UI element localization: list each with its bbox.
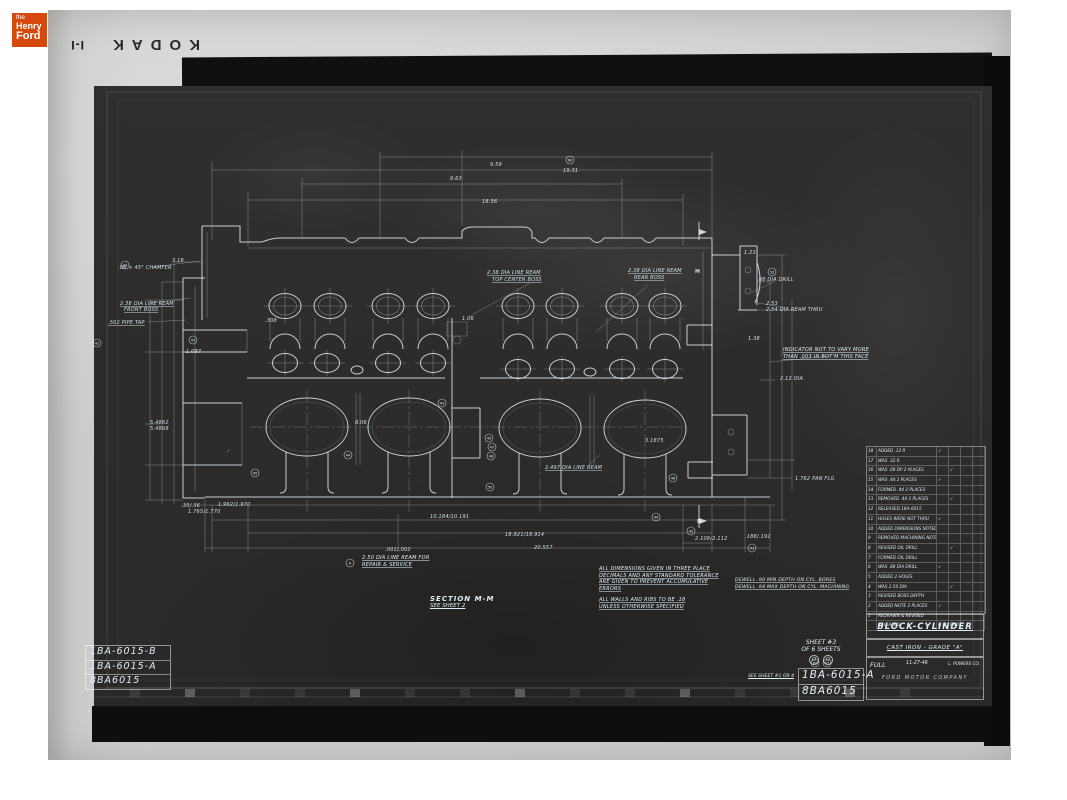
logo-ford: Ford — [16, 31, 47, 42]
revision-table: 18 ADDED .12 R ✓ 17 WAS .32 R 16 WAS .08… — [866, 446, 986, 614]
revision-cell — [961, 495, 973, 504]
revision-cell — [973, 583, 985, 592]
walls-note: ALL WALLS AND RIBS TO BE .18UNLESS OTHER… — [599, 597, 685, 610]
revision-text: FORMED .44 2 PLACES — [877, 486, 937, 495]
revision-row: 3 REVISED BOSS DEPTH — [867, 592, 985, 602]
zone-tick — [405, 689, 415, 697]
revision-text: WAS .88 DIA DRILL — [877, 563, 937, 572]
section-label: SECTION M-M SEE SHEET 2 — [430, 595, 494, 609]
revision-row: 5 ADDED 2 HOLES — [867, 573, 985, 583]
zone-tick — [350, 689, 360, 697]
scale-value: FULL — [870, 661, 886, 669]
revision-number: 13 — [867, 495, 877, 504]
sheet-info: SHEET #3 OF 6 SHEETS OO — [790, 639, 852, 665]
revision-check: ✓ — [937, 602, 949, 611]
drawing-date: 11-27-46 — [906, 661, 928, 669]
revision-number: 15 — [867, 476, 877, 485]
revision-check — [949, 602, 961, 611]
revision-text: FORMED OIL DRILL — [877, 554, 937, 563]
revision-cell — [973, 457, 985, 466]
revision-cell — [961, 544, 973, 553]
sheet-marks: OO — [790, 653, 852, 665]
note-line: ALL DIMENSIONS GIVEN IN THREE PLACE — [599, 566, 719, 573]
revision-cell — [973, 466, 985, 475]
revision-check — [937, 466, 949, 475]
draftsman: L. POWERS CO. — [948, 661, 980, 669]
revision-cell — [961, 447, 973, 456]
revision-text: WAS .08 DP 2 PLACES — [877, 466, 937, 475]
revision-check — [949, 486, 961, 495]
revision-check: ✓ — [949, 583, 961, 592]
zone-tick — [790, 689, 800, 697]
revision-number: 3 — [867, 592, 877, 601]
revision-text: ADDED NOTE 2 PLACES — [877, 602, 937, 611]
revision-check — [937, 573, 949, 582]
revision-text: ADDED 2 HOLES — [877, 573, 937, 582]
revision-number: 9 — [867, 534, 877, 543]
revision-cell — [961, 563, 973, 572]
drawing-title-box: BLOCK-CYLINDER — [866, 614, 984, 639]
material-box: CAST IRON - GRADE "A" — [866, 639, 984, 657]
section-sheet-ref: SEE SHEET 2 — [430, 603, 494, 609]
revision-row: 4 WAS 2.50 DIA ✓ — [867, 583, 985, 593]
revision-check — [949, 515, 961, 524]
revision-text: HOLES WERE NOT THRU — [877, 515, 937, 524]
revision-check: ✓ — [937, 515, 949, 524]
revision-check — [949, 457, 961, 466]
revision-cell — [973, 495, 985, 504]
zone-tick — [515, 689, 525, 697]
revision-check — [937, 592, 949, 601]
revision-number: 8 — [867, 544, 877, 553]
revision-number: 11 — [867, 515, 877, 524]
revision-number: 6 — [867, 563, 877, 572]
revision-row: 17 WAS .32 R — [867, 457, 985, 467]
note-line: ARE GIVEN TO PREVENT ACCUMULATIVE — [599, 579, 719, 586]
revision-row: 18 ADDED .12 R ✓ — [867, 447, 985, 457]
note-line: UNLESS OTHERWISE SPECIFIED — [599, 604, 685, 611]
revision-text: WAS .44 2 PLACES — [877, 476, 937, 485]
revision-check — [937, 495, 949, 504]
revision-row: 16 WAS .08 DP 2 PLACES ✓ — [867, 466, 985, 476]
note-line: ALL WALLS AND RIBS TO BE .18 — [599, 597, 685, 604]
see-sheet-reference: SEE SHEET #1 OR 4 — [748, 674, 800, 679]
revision-check: ✓ — [949, 495, 961, 504]
revision-number: 7 — [867, 554, 877, 563]
revision-number: 18 — [867, 447, 877, 456]
zone-tick — [460, 689, 470, 697]
note-line: DEWELL .90 MIN DEPTH ON CYL. BORES — [735, 578, 849, 585]
revision-check — [949, 525, 961, 534]
revision-row: 15 WAS .44 2 PLACES ✓ — [867, 476, 985, 486]
revision-number: 14 — [867, 486, 877, 495]
company-name: FORD MOTOR COMPANY — [867, 675, 983, 681]
revision-check — [949, 563, 961, 572]
revision-row: 8 REVISED OIL DRILL ✓ — [867, 544, 985, 554]
revision-cell — [961, 466, 973, 475]
revision-check — [937, 486, 949, 495]
revision-row: 7 FORMED OIL DRILL — [867, 554, 985, 564]
henry-ford-logo: the Henry Ford — [12, 13, 47, 47]
revision-text: WAS .32 R — [877, 457, 937, 466]
zone-tick — [625, 689, 635, 697]
revision-cell — [961, 534, 973, 543]
revision-check — [937, 525, 949, 534]
revision-text: WAS 2.50 DIA — [877, 583, 937, 592]
revision-cell — [973, 544, 985, 553]
note-line: DECIMALS AND ANY STANDARD TOLERANCE — [599, 573, 719, 580]
revision-number: 2 — [867, 602, 877, 611]
revision-check — [949, 573, 961, 582]
negative-drawing-area — [94, 86, 992, 710]
revision-cell — [973, 602, 985, 611]
part-number: 1BA-6015-A — [86, 661, 170, 676]
tolerance-note: ALL DIMENSIONS GIVEN IN THREE PLACEDECIM… — [599, 566, 719, 592]
revision-check — [949, 505, 961, 514]
revision-row: 12 RELEASED 18A-6015 — [867, 505, 985, 515]
revision-number: 4 — [867, 583, 877, 592]
revision-cell — [961, 592, 973, 601]
revision-cell — [961, 525, 973, 534]
revision-cell — [973, 476, 985, 485]
revision-text: REMOVED MACHINING NOTE — [877, 534, 937, 543]
sheet-number: SHEET #3 — [790, 639, 852, 646]
revision-cell — [973, 525, 985, 534]
material-spec: CAST IRON - GRADE "A" — [887, 645, 963, 651]
revision-text: REMOVED .44 2 PLACES — [877, 495, 937, 504]
zone-tick — [900, 689, 910, 697]
note-line: DEWELL .94 MAX DEPTH ON CYL. MACHINING — [735, 585, 849, 592]
note-line: ERRORS — [599, 586, 719, 593]
dwell-note: DEWELL .90 MIN DEPTH ON CYL. BORESDEWELL… — [735, 578, 849, 591]
film-frame-mark: I-I — [58, 36, 84, 52]
revision-cell — [973, 592, 985, 601]
zone-ruler — [95, 688, 984, 698]
kodak-film-brand-text: KODAK — [96, 33, 200, 53]
revision-row: 14 FORMED .44 2 PLACES — [867, 486, 985, 496]
note-line: THAN .003 IN BOT'M THIS FACE — [783, 354, 869, 361]
revision-number: 5 — [867, 573, 877, 582]
revision-cell — [973, 573, 985, 582]
revision-row: 2 ADDED NOTE 2 PLACES ✓ — [867, 602, 985, 612]
zone-tick — [130, 689, 140, 697]
film-edge-band-bottom — [92, 706, 992, 742]
sheet-count: OF 6 SHEETS — [790, 646, 852, 653]
revision-row: 9 REMOVED MACHINING NOTE — [867, 534, 985, 544]
revision-check — [937, 505, 949, 514]
revision-check: ✓ — [949, 544, 961, 553]
revision-text: ADDED .12 R — [877, 447, 937, 456]
note-line: 2.50 DIA LINE REAM FOR — [362, 555, 430, 562]
zone-tick — [735, 689, 745, 697]
revision-number: 12 — [867, 505, 877, 514]
revision-cell — [961, 486, 973, 495]
revision-check: ✓ — [937, 447, 949, 456]
zone-tick — [185, 689, 195, 697]
revision-text: REVISED OIL DRILL — [877, 544, 937, 553]
revision-check — [937, 534, 949, 543]
revision-text: REVISED BOSS DEPTH — [877, 592, 937, 601]
revision-number: 17 — [867, 457, 877, 466]
note-line: REPAIR & SERVICE — [362, 562, 430, 569]
archival-scan-page: KODAK I-I — [0, 0, 1067, 800]
repair-note: 2.50 DIA LINE REAM FORREPAIR & SERVICE — [362, 555, 430, 568]
revision-row: 13 REMOVED .44 2 PLACES ✓ — [867, 495, 985, 505]
zone-tick — [295, 689, 305, 697]
zone-tick — [240, 689, 250, 697]
revision-text: ADDED DIMENSIONS NOTED — [877, 525, 937, 534]
zone-tick — [570, 689, 580, 697]
revision-cell — [961, 515, 973, 524]
revision-cell — [973, 515, 985, 524]
revision-row: 10 ADDED DIMENSIONS NOTED — [867, 525, 985, 535]
revision-check — [949, 476, 961, 485]
revision-cell — [973, 554, 985, 563]
note-line: INDICATOR NOT TO VARY MORE — [783, 347, 869, 354]
sheet-mark-symbol: O — [809, 655, 819, 665]
revision-number: 10 — [867, 525, 877, 534]
revision-check: ✓ — [949, 466, 961, 475]
indicator-note: INDICATOR NOT TO VARY MORETHAN .003 IN B… — [783, 347, 869, 360]
revision-check — [937, 544, 949, 553]
revision-text: RELEASED 18A-6015 — [877, 505, 937, 514]
revision-number: 16 — [867, 466, 877, 475]
revision-check — [949, 554, 961, 563]
sheet-mark-symbol: O — [823, 655, 833, 665]
revision-check — [949, 534, 961, 543]
revision-check — [937, 583, 949, 592]
revision-cell — [961, 554, 973, 563]
revision-cell — [973, 563, 985, 572]
revision-cell — [961, 476, 973, 485]
part-number: 8BA6015 — [86, 675, 170, 689]
revision-row: 6 WAS .88 DIA DRILL ✓ — [867, 563, 985, 573]
part-number: 1BA-6015-A — [799, 669, 863, 685]
revision-cell — [961, 573, 973, 582]
revision-cell — [961, 583, 973, 592]
revision-cell — [973, 447, 985, 456]
part-number: 1BA-6015-B — [86, 646, 170, 661]
revision-cell — [961, 602, 973, 611]
revision-row: 11 HOLES WERE NOT THRU ✓ — [867, 515, 985, 525]
revision-check — [937, 554, 949, 563]
revision-check: ✓ — [937, 563, 949, 572]
revision-cell — [973, 534, 985, 543]
revision-check — [937, 457, 949, 466]
section-title: SECTION M-M — [430, 595, 494, 603]
part-number-stack: 1BA-6015-B1BA-6015-A8BA6015 — [85, 645, 171, 690]
revision-cell — [961, 457, 973, 466]
zone-tick — [845, 689, 855, 697]
revision-check: ✓ — [937, 476, 949, 485]
revision-check — [949, 592, 961, 601]
revision-cell — [973, 505, 985, 514]
revision-cell — [961, 505, 973, 514]
drawing-title: BLOCK-CYLINDER — [877, 622, 973, 632]
zone-tick — [680, 689, 690, 697]
revision-cell — [973, 486, 985, 495]
revision-check — [949, 447, 961, 456]
